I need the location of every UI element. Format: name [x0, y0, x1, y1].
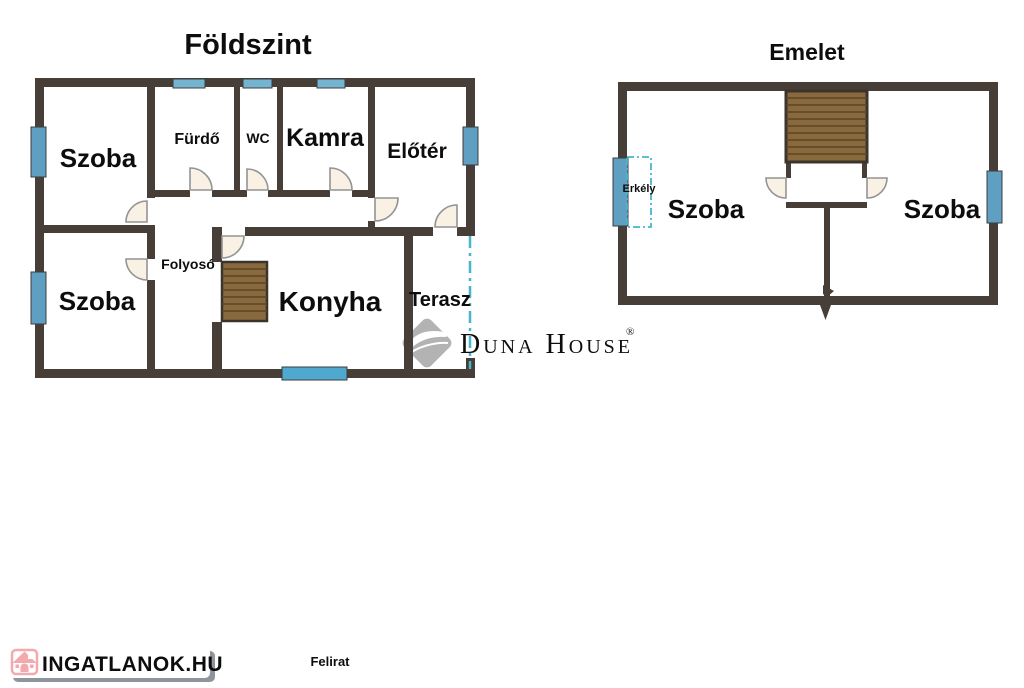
door-arc	[126, 259, 147, 280]
window	[987, 171, 1002, 223]
wall-segment	[786, 162, 791, 178]
room-label-eloter: Előtér	[387, 140, 447, 163]
room-label-szoba-top: Szoba	[60, 143, 137, 173]
room-label-terasz: Terasz	[409, 289, 471, 311]
ground-floor-walls	[35, 78, 475, 378]
room-label-erkely: Erkély	[622, 183, 656, 195]
wall-segment	[147, 87, 155, 198]
stairs	[222, 262, 267, 321]
window	[31, 272, 46, 324]
window	[173, 79, 205, 88]
door-arc	[126, 201, 147, 222]
watermark-duna-house: Duna House ®	[400, 316, 634, 370]
wall-segment	[234, 87, 240, 190]
door-arc	[222, 236, 244, 258]
door-arc	[190, 168, 212, 190]
wall-segment	[862, 162, 867, 178]
window	[463, 127, 478, 165]
stairs-steps	[222, 269, 267, 311]
room-label-szoba-left: Szoba	[668, 194, 745, 224]
wall-segment	[457, 227, 466, 236]
wall-segment	[212, 322, 222, 369]
upper-floor-plan: Emelet	[613, 39, 1002, 320]
ground-floor-plan: Földszint	[31, 29, 478, 380]
ground-floor-stairs	[222, 262, 267, 321]
door-arc	[867, 178, 887, 198]
wall-segment	[786, 202, 867, 208]
room-label-szoba-bottom: Szoba	[59, 286, 136, 316]
ingatlanok-logo: INGATLANOK.HU	[8, 647, 223, 682]
direction-spike	[820, 305, 831, 320]
room-label-furdo: Fürdő	[174, 131, 220, 148]
floor-plan-canvas: Duna House ® Földszint	[0, 0, 1024, 688]
window	[243, 79, 272, 88]
ingatlanok-logo-text: INGATLANOK.HU	[42, 653, 223, 676]
watermark-brand-text: Duna House	[460, 329, 633, 360]
ingatlanok-house-icon	[12, 650, 37, 674]
wall-segment	[245, 227, 433, 236]
wall-segment	[352, 190, 375, 197]
wall-segment	[268, 190, 330, 197]
wall-segment	[212, 227, 222, 236]
wall-segment	[277, 87, 283, 190]
floor-plan-page: Duna House ® Földszint	[0, 0, 1024, 688]
wall-segment	[35, 225, 155, 233]
wall-segment	[147, 233, 155, 259]
door-arc	[375, 198, 398, 221]
room-label-kamra: Kamra	[286, 124, 365, 152]
wall-segment	[618, 296, 998, 305]
wall-segment	[368, 87, 375, 198]
upper-floor-doors	[766, 178, 887, 198]
wall-segment	[147, 190, 190, 197]
wall-segment	[212, 190, 247, 197]
upper-floor-title: Emelet	[769, 39, 845, 65]
upper-floor-stairs	[786, 91, 867, 162]
room-label-szoba-right: Szoba	[904, 194, 981, 224]
room-label-konyha: Konyha	[279, 286, 382, 317]
room-label-wc: WC	[246, 130, 269, 146]
door-arc	[766, 178, 786, 198]
caption-text: Felirat	[310, 654, 350, 669]
room-label-folyoso: Folyosó	[161, 256, 215, 272]
window	[282, 367, 347, 380]
wall-segment	[147, 280, 155, 369]
door-arc	[435, 205, 457, 227]
window	[31, 127, 46, 177]
door-arc	[330, 168, 352, 190]
wall-segment	[35, 369, 475, 378]
watermark-registered-mark: ®	[626, 326, 634, 338]
window	[317, 79, 345, 88]
wall-segment	[824, 208, 830, 296]
door-arc	[247, 169, 268, 190]
ground-floor-title: Földszint	[184, 29, 312, 61]
